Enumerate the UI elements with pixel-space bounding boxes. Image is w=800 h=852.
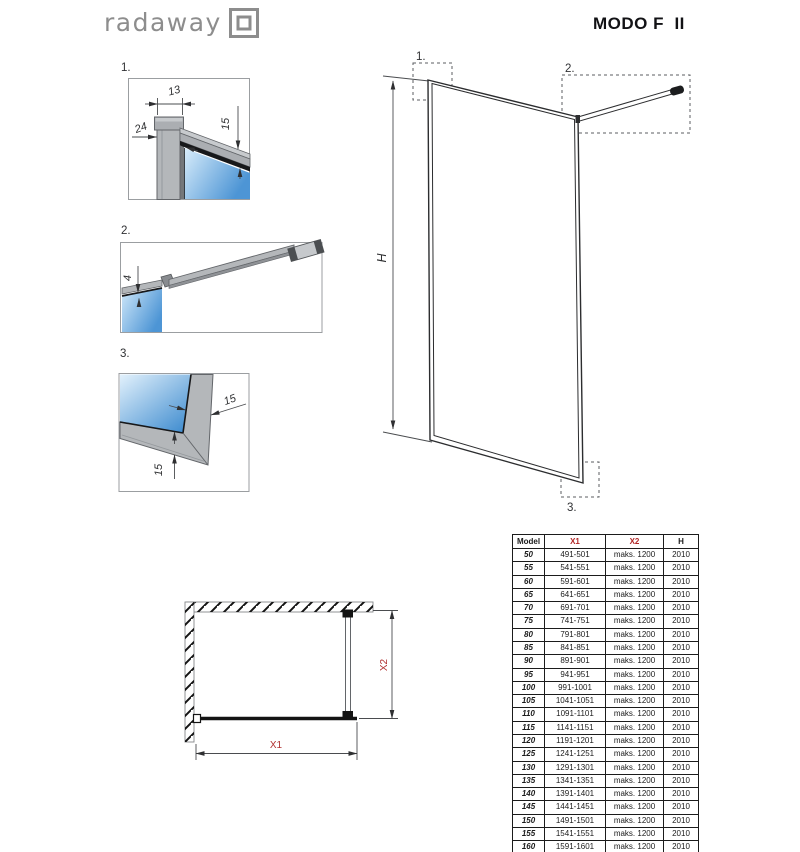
size-table: Model X1 X2 H 50491-501maks. 12002010555… — [512, 534, 699, 852]
dim-15-bottom: 15 — [153, 463, 165, 476]
table-cell-x2: maks. 1200 — [606, 748, 664, 761]
table-row: 1201191-1201maks. 12002010 — [513, 734, 699, 747]
table-row: 1401391-1401maks. 12002010 — [513, 788, 699, 801]
table-cell-x2: maks. 1200 — [606, 615, 664, 628]
table-row: 80791-801maks. 12002010 — [513, 628, 699, 641]
table-cell-model: 115 — [513, 721, 545, 734]
col-header-model: Model — [513, 535, 545, 549]
table-cell-x2: maks. 1200 — [606, 695, 664, 708]
table-cell-model: 125 — [513, 748, 545, 761]
detail-1-figure: 1. 13 24 15 — [118, 58, 254, 204]
page-title: MODO F II — [593, 14, 685, 34]
table-row: 95941-951maks. 12002010 — [513, 668, 699, 681]
x2-dim-label: X2 — [379, 658, 390, 671]
table-cell-h: 2010 — [664, 615, 699, 628]
table-cell-h: 2010 — [664, 788, 699, 801]
table-cell-x2: maks. 1200 — [606, 562, 664, 575]
table-cell-x1: 1291-1301 — [545, 761, 606, 774]
table-cell-x1: 791-801 — [545, 628, 606, 641]
table-cell-h: 2010 — [664, 708, 699, 721]
table-cell-x1: 991-1001 — [545, 681, 606, 694]
table-cell-model: 55 — [513, 562, 545, 575]
table-row: 1451441-1451maks. 12002010 — [513, 801, 699, 814]
x1-dim-label: X1 — [270, 740, 283, 751]
table-cell-model: 135 — [513, 774, 545, 787]
detail-3-label: 3. — [120, 348, 130, 360]
table-cell-h: 2010 — [664, 721, 699, 734]
table-cell-x2: maks. 1200 — [606, 801, 664, 814]
table-cell-x1: 1341-1351 — [545, 774, 606, 787]
table-cell-h: 2010 — [664, 814, 699, 827]
table-cell-model: 70 — [513, 602, 545, 615]
brand-logo-icon — [229, 8, 259, 38]
table-cell-x1: 1141-1151 — [545, 721, 606, 734]
table-cell-x2: maks. 1200 — [606, 549, 664, 562]
table-cell-model: 155 — [513, 827, 545, 840]
table-cell-h: 2010 — [664, 549, 699, 562]
table-header-row: Model X1 X2 H — [513, 535, 699, 549]
table-cell-x1: 1541-1551 — [545, 827, 606, 840]
table-cell-x1: 941-951 — [545, 668, 606, 681]
table-cell-x1: 1441-1451 — [545, 801, 606, 814]
table-cell-x1: 1591-1601 — [545, 841, 606, 852]
table-row: 1151141-1151maks. 12002010 — [513, 721, 699, 734]
wall-left-hatch — [185, 602, 194, 742]
ext-line — [383, 76, 429, 81]
table-cell-x2: maks. 1200 — [606, 761, 664, 774]
table-cell-x1: 491-501 — [545, 549, 606, 562]
table-cell-x1: 591-601 — [545, 575, 606, 588]
table-cell-x2: maks. 1200 — [606, 588, 664, 601]
table-cell-h: 2010 — [664, 575, 699, 588]
table-cell-x1: 641-651 — [545, 588, 606, 601]
table-row: 75741-751maks. 12002010 — [513, 615, 699, 628]
table-row: 70691-701maks. 12002010 — [513, 602, 699, 615]
table-cell-h: 2010 — [664, 641, 699, 654]
table-cell-x1: 741-751 — [545, 615, 606, 628]
table-cell-model: 60 — [513, 575, 545, 588]
table-cell-x2: maks. 1200 — [606, 708, 664, 721]
table-cell-x2: maks. 1200 — [606, 681, 664, 694]
table-cell-h: 2010 — [664, 761, 699, 774]
table-row: 65641-651maks. 12002010 — [513, 588, 699, 601]
wall-profile — [157, 129, 180, 200]
wall-profile-clamp — [194, 715, 201, 723]
table-cell-x1: 891-901 — [545, 655, 606, 668]
profile-seam — [180, 146, 184, 199]
spec-sheet-page: radaway MODO F II 1. 13 24 15 2. — [0, 0, 800, 852]
table-cell-x2: maks. 1200 — [606, 734, 664, 747]
profile-cap-highlight — [156, 118, 183, 122]
detail-1-label: 1. — [121, 62, 131, 74]
table-cell-x2: maks. 1200 — [606, 721, 664, 734]
table-row: 1601591-1601maks. 12002010 — [513, 841, 699, 852]
table-cell-model: 50 — [513, 549, 545, 562]
table-row: 1301291-1301maks. 12002010 — [513, 761, 699, 774]
ext-line — [383, 432, 432, 442]
brand-logo: radaway — [104, 8, 259, 38]
callout-label-1: 1. — [416, 51, 426, 63]
table-row: 1051041-1051maks. 12002010 — [513, 695, 699, 708]
table-cell-x1: 1091-1101 — [545, 708, 606, 721]
bar-wall-connector — [343, 610, 354, 618]
table-cell-x2: maks. 1200 — [606, 774, 664, 787]
table-cell-model: 120 — [513, 734, 545, 747]
table-cell-model: 160 — [513, 841, 545, 852]
table-cell-x2: maks. 1200 — [606, 655, 664, 668]
brand-logo-text: radaway — [104, 8, 222, 38]
table-row: 55541-551maks. 12002010 — [513, 562, 699, 575]
height-dim-label: H — [375, 253, 389, 263]
table-cell-model: 150 — [513, 814, 545, 827]
table-cell-x2: maks. 1200 — [606, 814, 664, 827]
table-cell-model: 75 — [513, 615, 545, 628]
table-cell-h: 2010 — [664, 801, 699, 814]
table-row: 85841-851maks. 12002010 — [513, 641, 699, 654]
table-row: 60591-601maks. 12002010 — [513, 575, 699, 588]
table-cell-h: 2010 — [664, 827, 699, 840]
table-cell-x2: maks. 1200 — [606, 827, 664, 840]
table-cell-h: 2010 — [664, 588, 699, 601]
detail-2-label: 2. — [121, 225, 131, 237]
detail-3-figure: 3. 15 15 — [117, 343, 253, 498]
table-cell-h: 2010 — [664, 628, 699, 641]
table-cell-model: 85 — [513, 641, 545, 654]
table-row: 90891-901maks. 12002010 — [513, 655, 699, 668]
table-row: 1551541-1551maks. 12002010 — [513, 827, 699, 840]
table-cell-h: 2010 — [664, 602, 699, 615]
table-cell-h: 2010 — [664, 695, 699, 708]
table-cell-model: 105 — [513, 695, 545, 708]
table-cell-h: 2010 — [664, 668, 699, 681]
table-cell-model: 90 — [513, 655, 545, 668]
table-cell-x2: maks. 1200 — [606, 602, 664, 615]
table-cell-h: 2010 — [664, 841, 699, 852]
table-cell-h: 2010 — [664, 562, 699, 575]
col-header-h: H — [664, 535, 699, 549]
table-cell-x1: 1191-1201 — [545, 734, 606, 747]
table-cell-x1: 541-551 — [545, 562, 606, 575]
col-header-x1: X1 — [545, 535, 606, 549]
table-cell-x2: maks. 1200 — [606, 641, 664, 654]
callout-label-2: 2. — [565, 63, 575, 75]
support-bar — [578, 89, 674, 122]
table-cell-model: 95 — [513, 668, 545, 681]
table-cell-x1: 1491-1501 — [545, 814, 606, 827]
table-cell-x2: maks. 1200 — [606, 575, 664, 588]
table-row: 50491-501maks. 12002010 — [513, 549, 699, 562]
table-row: 1501491-1501maks. 12002010 — [513, 814, 699, 827]
table-cell-x1: 1241-1251 — [545, 748, 606, 761]
table-cell-x1: 1391-1401 — [545, 788, 606, 801]
table-cell-h: 2010 — [664, 774, 699, 787]
table-cell-h: 2010 — [664, 655, 699, 668]
table-cell-model: 145 — [513, 801, 545, 814]
table-cell-model: 130 — [513, 761, 545, 774]
dim-4: 4 — [122, 275, 134, 281]
size-table-body: 50491-501maks. 1200201055541-551maks. 12… — [513, 549, 699, 852]
table-cell-model: 110 — [513, 708, 545, 721]
bar-glass-joint — [576, 115, 581, 123]
bar-wall-bracket — [669, 85, 685, 97]
table-row: 100991-1001maks. 12002010 — [513, 681, 699, 694]
table-cell-h: 2010 — [664, 681, 699, 694]
table-row: 1351341-1351maks. 12002010 — [513, 774, 699, 787]
table-cell-x1: 841-851 — [545, 641, 606, 654]
col-header-x2: X2 — [606, 535, 664, 549]
main-elevation-figure: 1. 2. 3. H — [375, 45, 705, 525]
table-cell-model: 80 — [513, 628, 545, 641]
table-cell-x2: maks. 1200 — [606, 788, 664, 801]
table-cell-h: 2010 — [664, 734, 699, 747]
table-cell-model: 65 — [513, 588, 545, 601]
table-cell-h: 2010 — [664, 748, 699, 761]
table-cell-model: 100 — [513, 681, 545, 694]
table-cell-x2: maks. 1200 — [606, 628, 664, 641]
table-cell-model: 140 — [513, 788, 545, 801]
plan-view-figure: X2 X1 — [178, 593, 413, 768]
table-row: 1101091-1101maks. 12002010 — [513, 708, 699, 721]
table-row: 1251241-1251maks. 12002010 — [513, 748, 699, 761]
table-cell-x1: 691-701 — [545, 602, 606, 615]
bar-glass-connector — [343, 711, 354, 719]
glass-panel-outline — [428, 80, 583, 483]
table-cell-x2: maks. 1200 — [606, 668, 664, 681]
table-cell-x1: 1041-1051 — [545, 695, 606, 708]
callout-label-3: 3. — [567, 502, 577, 514]
detail-2-figure: 2. 4 — [118, 220, 330, 338]
size-table-grid: Model X1 X2 H 50491-501maks. 12002010555… — [512, 534, 699, 852]
dim-15: 15 — [220, 117, 232, 130]
table-cell-x2: maks. 1200 — [606, 841, 664, 852]
